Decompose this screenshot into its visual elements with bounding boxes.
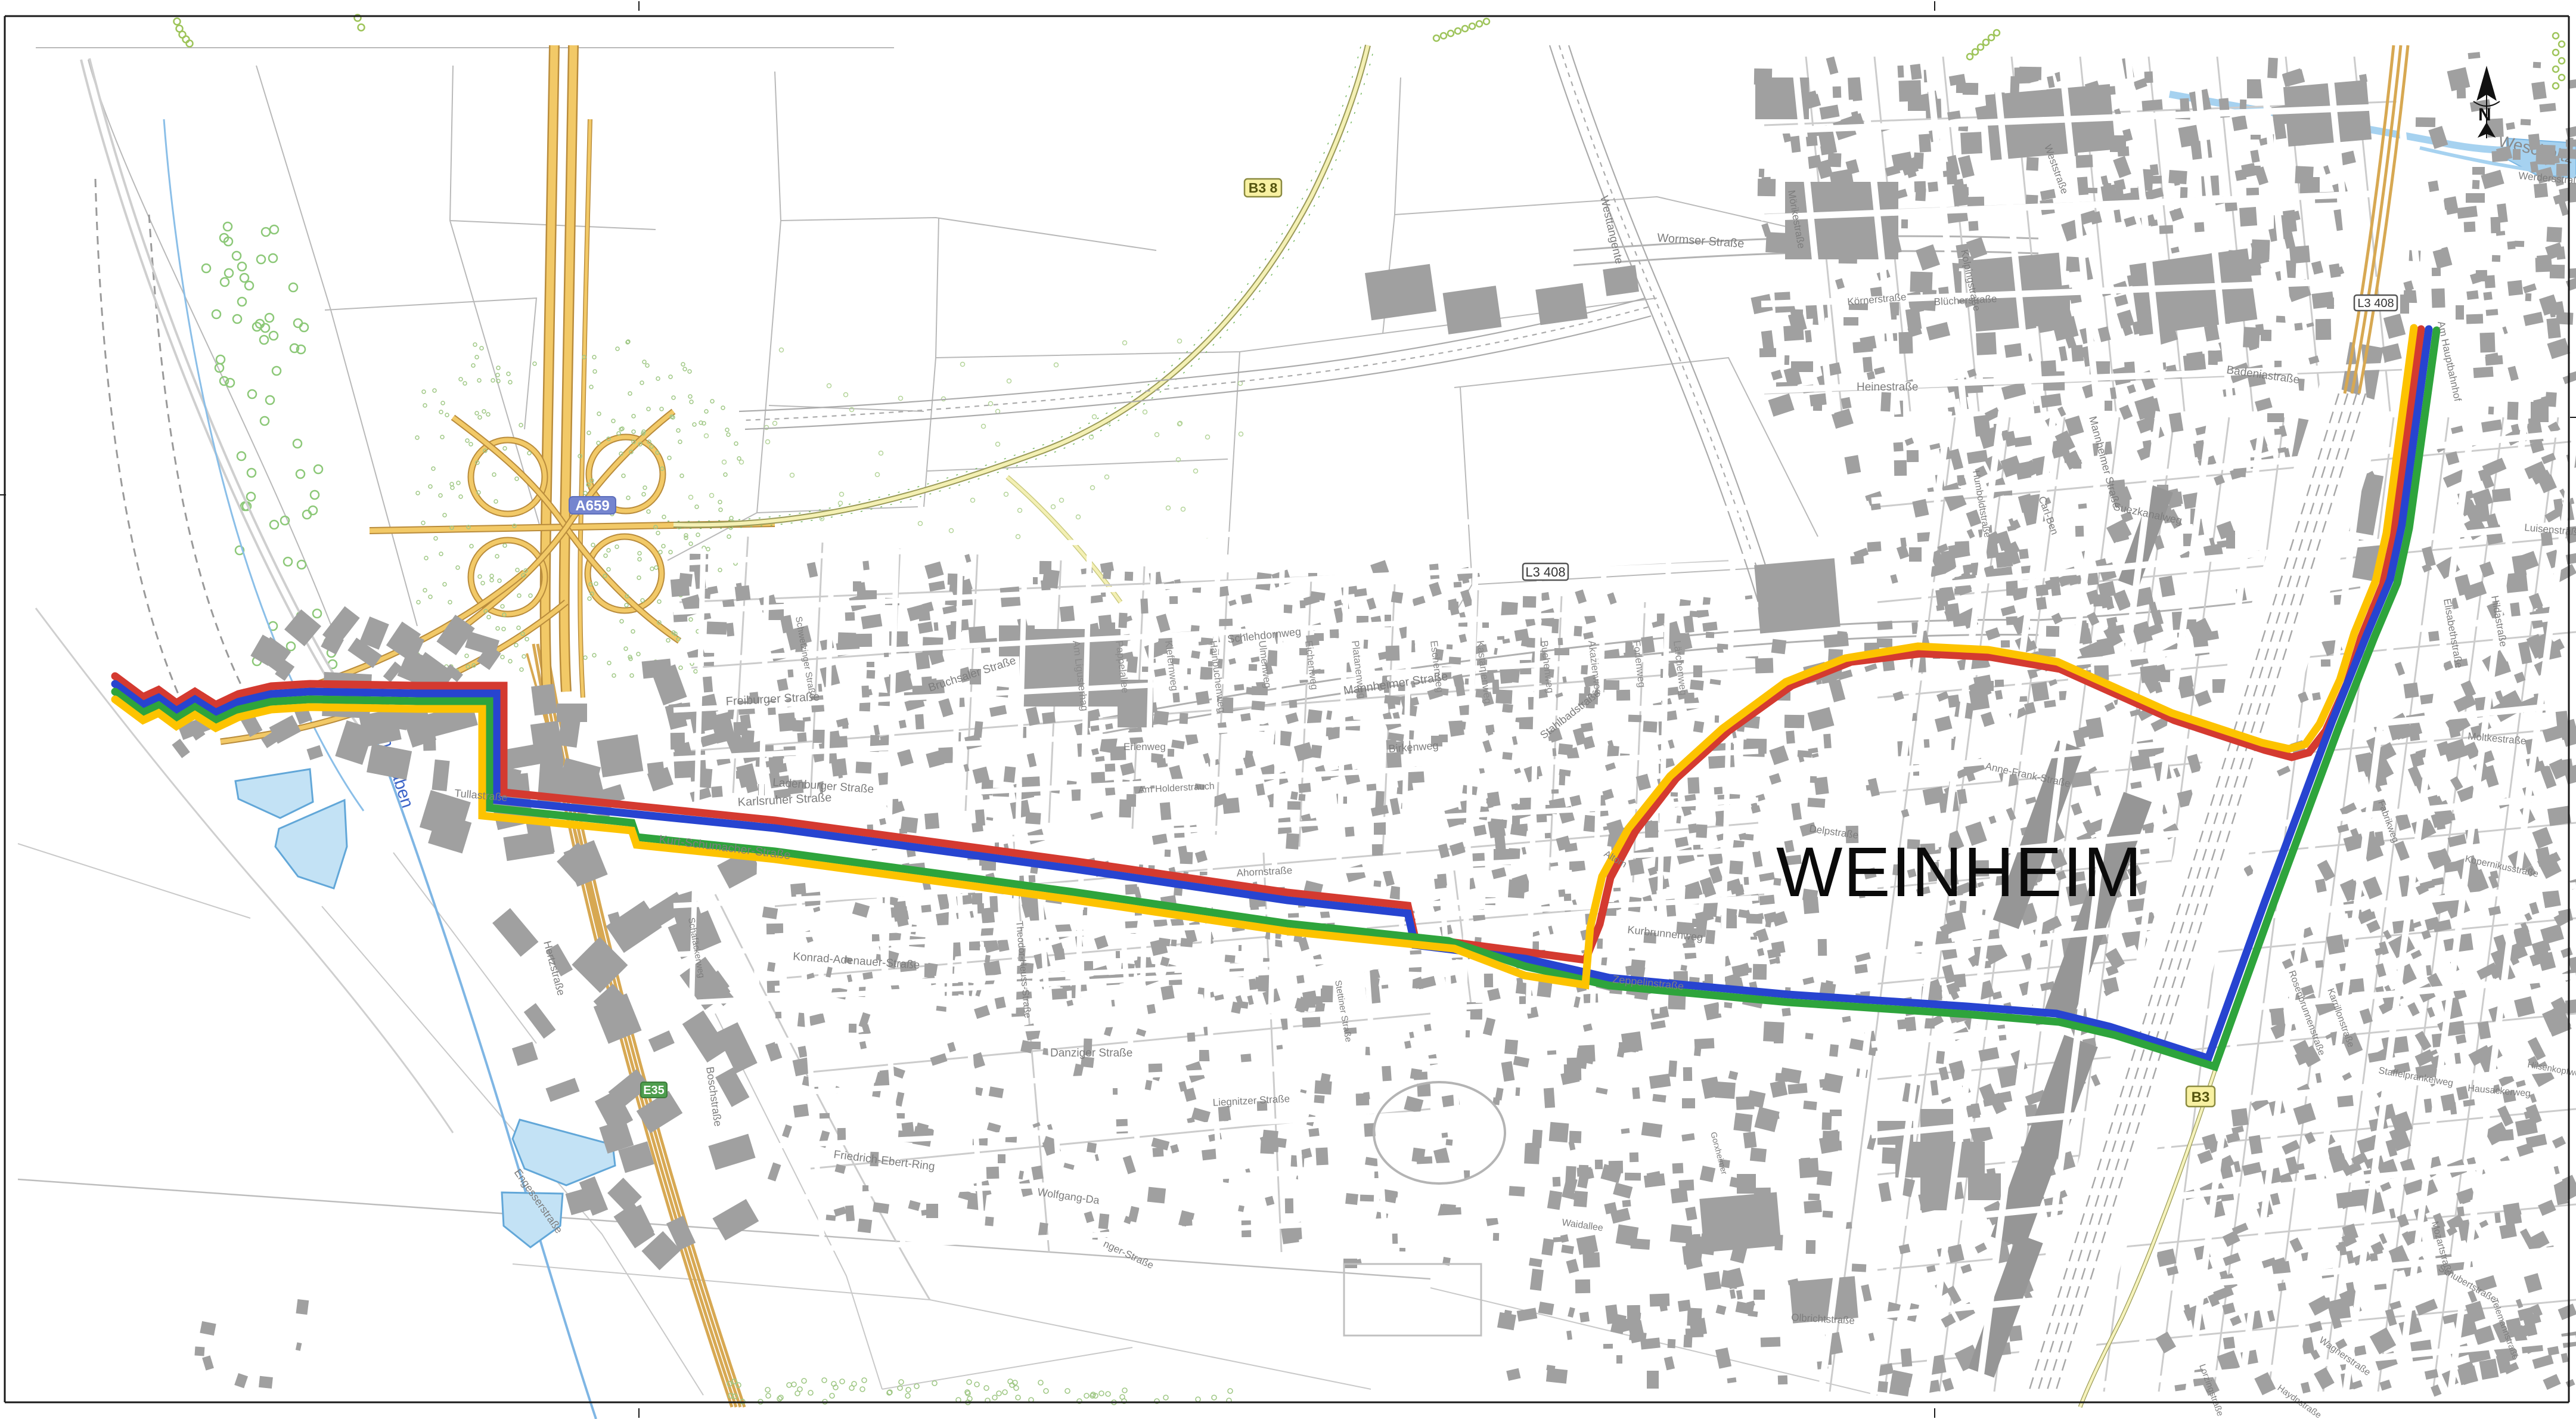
svg-text:L3 408: L3 408 [1525, 565, 1565, 580]
svg-text:N: N [2478, 105, 2491, 125]
svg-text:A659: A659 [575, 498, 609, 514]
svg-text:Heinestraße: Heinestraße [1857, 381, 1919, 394]
svg-text:Erlenweg: Erlenweg [1123, 741, 1166, 752]
svg-text:Danziger Straße: Danziger Straße [1050, 1047, 1132, 1059]
svg-text:B3: B3 [2192, 1089, 2210, 1105]
svg-text:L3 408: L3 408 [2357, 297, 2394, 310]
svg-text:B3 8: B3 8 [1249, 180, 1278, 196]
svg-text:E35: E35 [643, 1084, 665, 1097]
svg-text:WEINHEIM: WEINHEIM [1776, 833, 2143, 912]
